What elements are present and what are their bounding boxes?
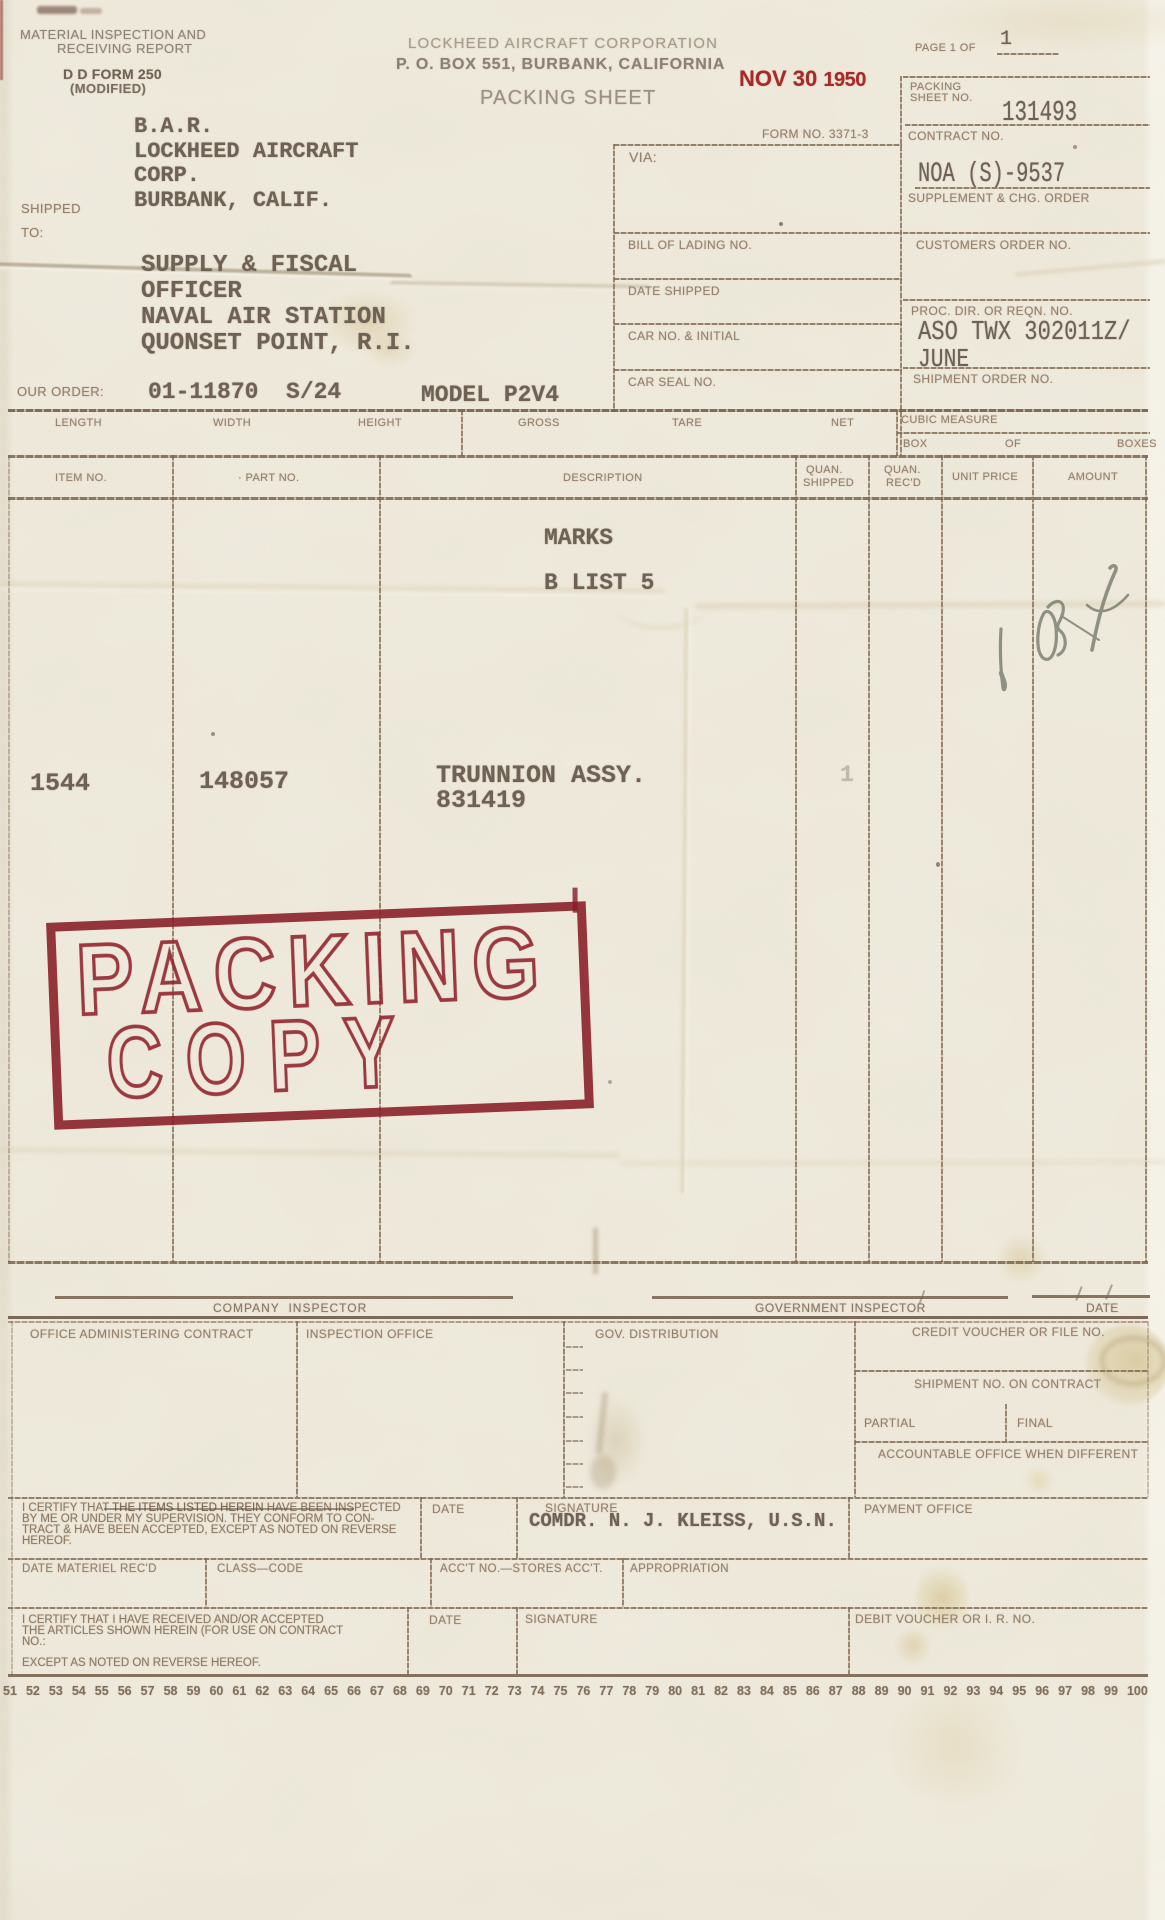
- svg-text:COPY: COPY: [105, 995, 421, 1119]
